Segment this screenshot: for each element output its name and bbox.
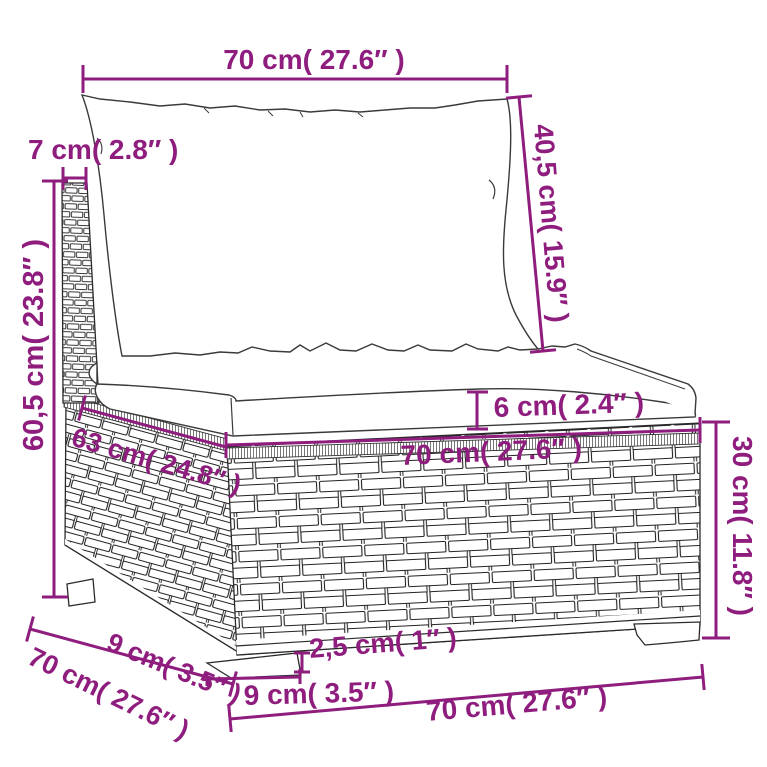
- svg-text:30 cm( 11.8″ ): 30 cm( 11.8″ ): [727, 436, 758, 616]
- svg-text:7 cm( 2.8″ ): 7 cm( 2.8″ ): [28, 134, 178, 165]
- svg-text:6 cm( 2.4″ ): 6 cm( 2.4″ ): [493, 387, 644, 423]
- svg-text:9 cm( 3.5″ ): 9 cm( 3.5″ ): [243, 676, 394, 711]
- svg-text:70 cm( 27.6″ ): 70 cm( 27.6″ ): [425, 680, 609, 727]
- svg-text:60,5 cm( 23.8″ ): 60,5 cm( 23.8″ ): [18, 239, 50, 451]
- svg-text:40,5 cm( 15.9″ ): 40,5 cm( 15.9″ ): [528, 123, 575, 324]
- svg-text:70 cm( 27.6″ ): 70 cm( 27.6″ ): [223, 44, 405, 75]
